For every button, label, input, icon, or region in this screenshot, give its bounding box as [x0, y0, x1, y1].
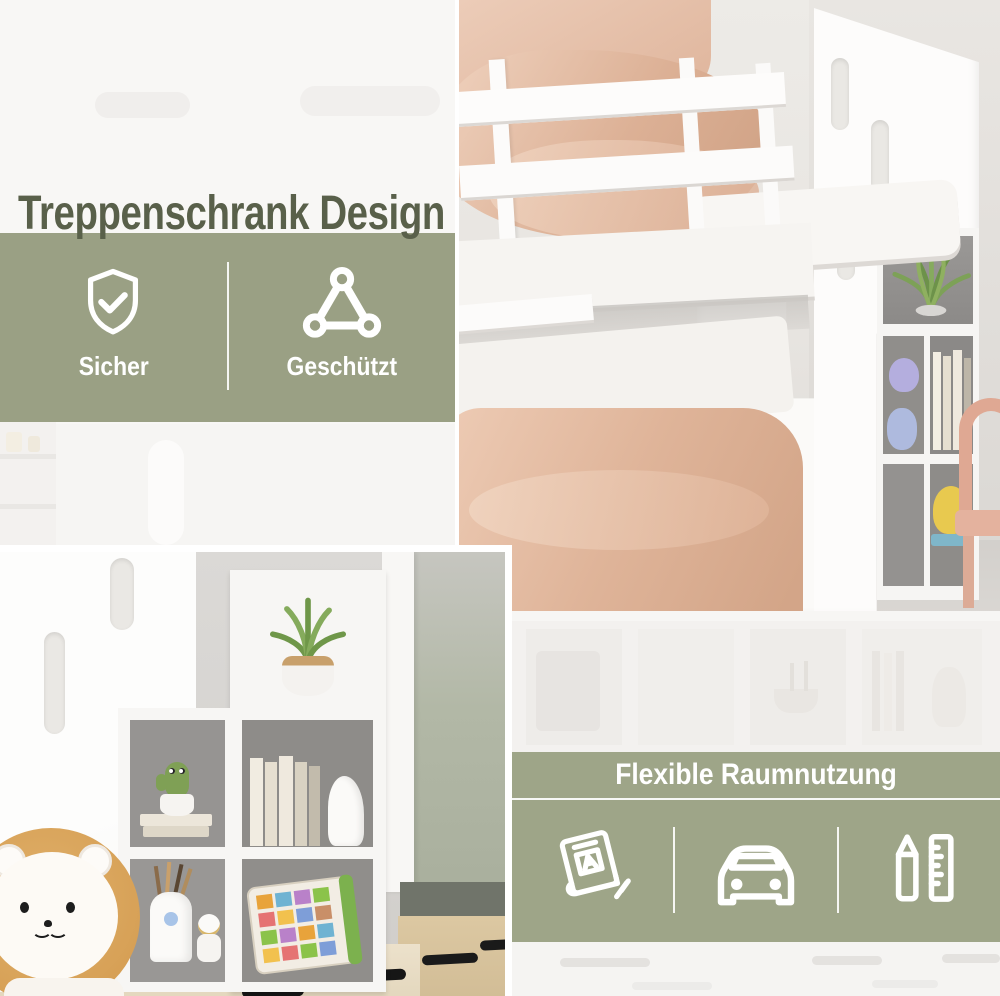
books [309, 766, 320, 846]
books [279, 756, 293, 846]
books [250, 758, 263, 846]
stair-handle-cutout [831, 58, 849, 130]
safety-band: Sicher Geschützt [0, 233, 455, 422]
ghost-wall [56, 424, 456, 545]
lion-plush [0, 828, 182, 996]
photo-bunk-bed [455, 0, 1000, 611]
cubby [883, 464, 924, 586]
feature-label: Geschützt [286, 351, 397, 382]
ghost-drawers [512, 942, 1000, 996]
lion-eye [20, 902, 29, 913]
cactus [165, 762, 189, 798]
lion-body [4, 978, 124, 996]
book-icon [512, 800, 673, 940]
duvet-fold [469, 470, 769, 550]
books [943, 356, 951, 450]
car-icon [675, 800, 836, 940]
feature-geschuetzt: Geschützt [229, 233, 456, 422]
books [933, 352, 941, 450]
wall-green [412, 552, 512, 900]
under-bed-dark-band [400, 882, 512, 918]
triangle-link-icon [297, 263, 387, 343]
feature-sicher: Sicher [0, 233, 227, 422]
white-frame-column [382, 552, 414, 892]
flexibility-band-title: Flexible Raumnutzung [512, 752, 1000, 798]
astronaut-figure [198, 914, 220, 936]
plush-toy [889, 358, 919, 392]
plush-toy [887, 408, 917, 450]
flexibility-band: Flexible Raumnutzung [512, 752, 1000, 942]
kids-chair [955, 398, 1000, 611]
cactus-eye [179, 768, 185, 774]
lion-eye [66, 902, 75, 913]
shield-check-icon [74, 263, 152, 343]
plant-pot [282, 656, 334, 696]
ghost-highlight [148, 440, 184, 545]
ghost-shape [300, 86, 440, 116]
cactus-pot [160, 794, 194, 816]
page-title: Treppenschrank Design [18, 187, 445, 241]
feature-label: Sicher [78, 351, 148, 382]
cactus-arm [156, 774, 167, 791]
floor-slat [480, 939, 510, 951]
stair-handle-cutout [871, 120, 889, 192]
astronaut-body [197, 934, 221, 962]
handle-cutout [44, 632, 65, 734]
ghost-shelf-strip [0, 420, 56, 545]
ghost-shape [95, 92, 190, 118]
books [265, 762, 277, 846]
flexibility-icons-row [512, 800, 1000, 940]
ghost-bookshelf [512, 611, 1000, 752]
product-infographic: Treppenschrank Design Sicher [0, 0, 1000, 996]
photo-storage-shelf [0, 545, 512, 996]
alphabet-toy [240, 869, 369, 983]
pencil-ruler-icon [839, 800, 1000, 940]
books [295, 762, 307, 846]
flexibility-band-title-text: Flexible Raumnutzung [615, 758, 897, 792]
cactus-eye [169, 768, 175, 774]
lion-smile [48, 922, 68, 938]
